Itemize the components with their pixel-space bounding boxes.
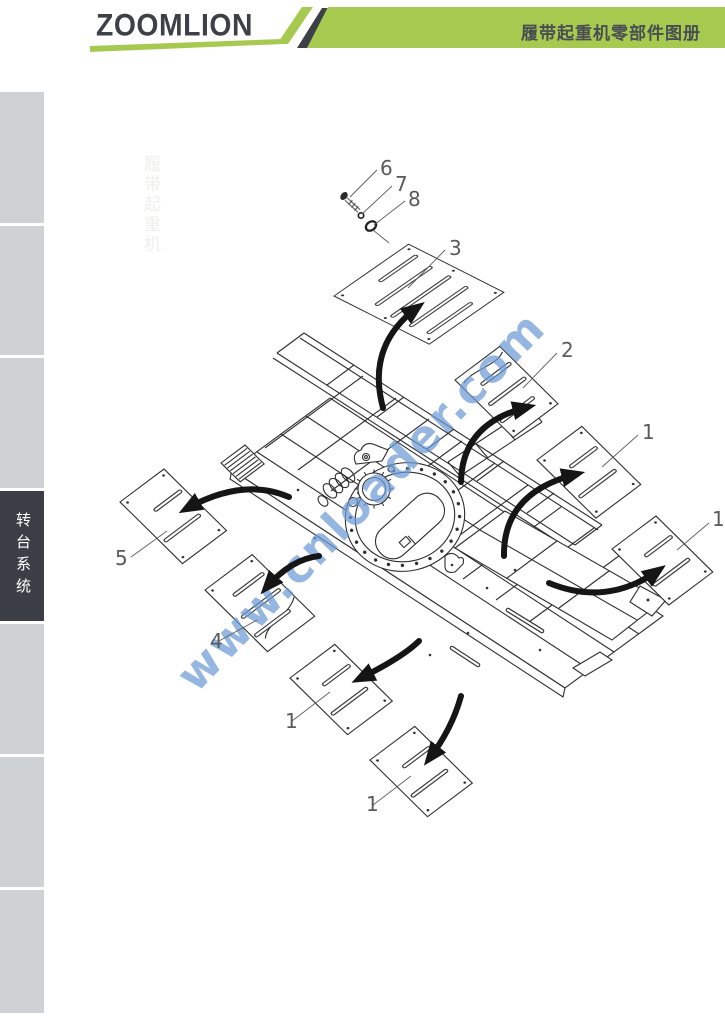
callout-5: 5 [115, 546, 128, 570]
fastener-stack [339, 191, 378, 233]
turntable-exploded-diagram: www.cnloader.com [0, 0, 725, 1024]
cover-plate-3 [334, 244, 504, 344]
callout-4: 4 [210, 629, 223, 653]
callout-1-bottom-left: 1 [285, 709, 298, 733]
cover-plate-1-bottom-left [290, 644, 392, 734]
cover-plate-5 [120, 469, 226, 564]
callout-8: 8 [408, 187, 421, 211]
callout-3: 3 [449, 236, 462, 260]
callout-6: 6 [380, 156, 393, 180]
arrow-to-plate-1-bottom-left [359, 641, 419, 679]
callout-1-right: 1 [642, 420, 655, 444]
callout-2: 2 [561, 338, 574, 362]
catalog-page: ZOOMLION 履带起重机零部件图册 转台系统 履带起重机 [0, 0, 725, 1024]
arrow-to-plate-1-bottom-right [429, 696, 461, 759]
callout-1-bottom-right: 1 [366, 792, 379, 816]
callout-7: 7 [395, 172, 408, 196]
callout-1-far-right: 1 [712, 507, 725, 531]
cover-plate-1-right [537, 426, 641, 518]
cover-plate-1-bottom-right [370, 726, 472, 816]
lock-washer [364, 219, 378, 233]
